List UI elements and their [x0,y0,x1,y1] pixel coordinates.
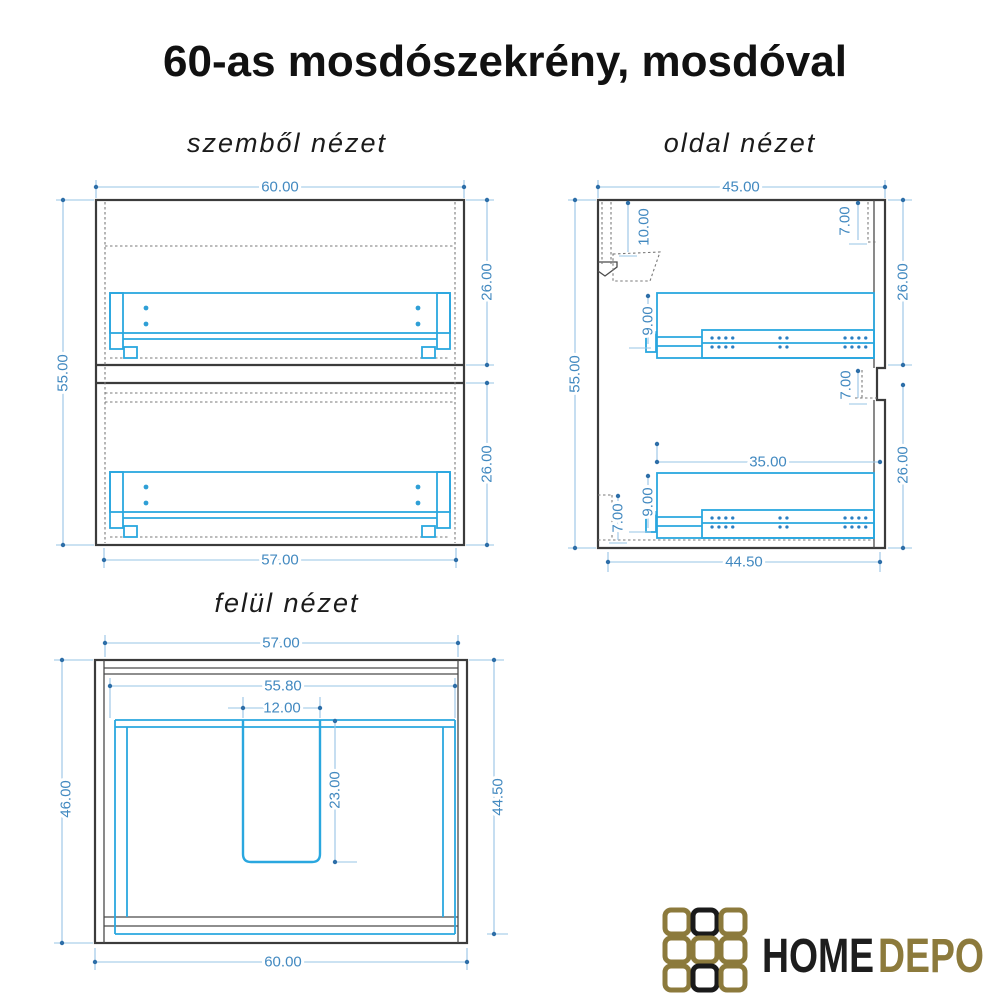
logo-text-home: HOME [762,930,874,983]
dim-label: 55.00 [55,354,72,392]
page-title: 60-as mosdószekrény, mosdóval [163,37,847,86]
dim-label: 57.00 [262,635,300,652]
front-view-title: szemből nézet [187,128,387,158]
top-view-title: felül nézet [214,588,359,618]
dim-label: 9.00 [640,306,657,335]
dim-label: 7.00 [610,503,627,532]
dim-label: 12.00 [263,700,301,717]
dim-label: 60.00 [264,954,302,971]
dim-label: 7.00 [837,206,854,235]
dim-label: 44.50 [725,554,763,571]
dim-label: 44.50 [490,778,507,816]
drawing-canvas: 60-as mosdószekrény, mosdóval szemből né… [0,0,1000,1000]
dim-label: 26.00 [895,446,912,484]
dim-label: 10.00 [636,208,653,246]
logo-text-depo: DEPO [878,930,984,983]
dim-label: 9.00 [640,487,657,516]
dim-label: 60.00 [261,179,299,196]
side-view-title: oldal nézet [664,128,817,158]
dim-label: 55.80 [264,678,302,695]
dim-label: 26.00 [895,263,912,301]
dim-label: 23.00 [327,771,344,809]
dim-label: 26.00 [479,263,496,301]
dim-label: 7.00 [838,370,855,399]
technical-drawing: 60-as mosdószekrény, mosdóval szemből né… [0,0,1000,1000]
dim-label: 26.00 [479,445,496,483]
background [0,0,1000,1000]
dim-label: 35.00 [749,454,787,471]
dim-label: 55.00 [567,355,584,393]
dim-label: 46.00 [58,780,75,818]
dim-label: 45.00 [722,179,760,196]
dim-label: 57.00 [261,552,299,569]
